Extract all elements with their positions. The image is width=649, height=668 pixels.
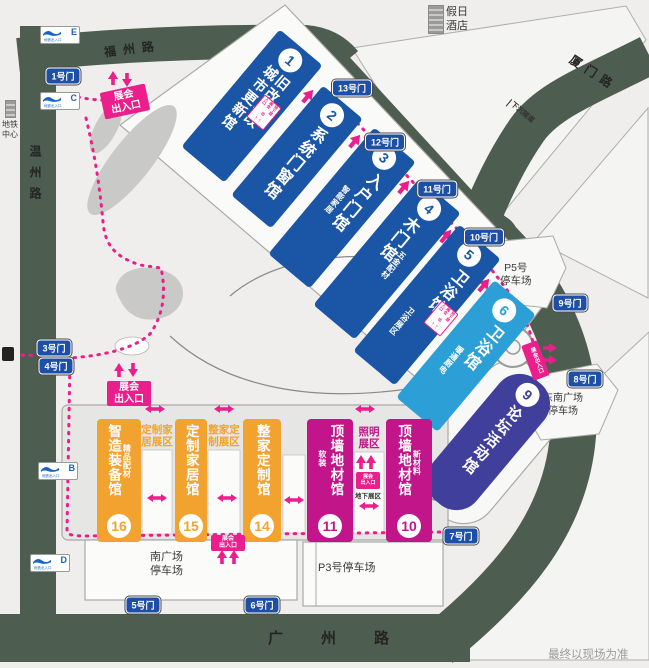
metro-exit-label: 地铁出入口: [34, 566, 52, 571]
hall-15-name: 定制家居馆: [183, 424, 199, 497]
gate-6[interactable]: 6号门: [244, 597, 279, 614]
gate-11[interactable]: 11号门: [417, 181, 457, 198]
basement-zone-label: 地下展区: [352, 493, 384, 501]
metro-exit-letter: D: [61, 555, 68, 565]
gate-13[interactable]: 13号门: [332, 80, 372, 97]
partial-gate-marker: [2, 347, 14, 361]
metro-wave-icon: [41, 464, 59, 473]
metro-wave-icon: [43, 94, 61, 103]
zone-whole-home: 整家定制展区: [207, 424, 241, 448]
gate-4[interactable]: 4号门: [38, 358, 73, 375]
metro-exit-letter: E: [71, 27, 77, 37]
hall-11[interactable]: 顶墙地材馆 软装 11: [307, 419, 353, 542]
metro-exit-e[interactable]: E 地铁出入口: [40, 26, 80, 44]
entrance-gap-lighting[interactable]: 展会出入口: [356, 472, 380, 489]
parking-p5: P5号停车场: [500, 262, 532, 288]
hall-10[interactable]: 新材料 顶墙地材馆 10: [386, 419, 432, 542]
entrance-south[interactable]: 展会出入口: [211, 535, 245, 551]
road-wenzhou: 温州路: [27, 145, 42, 208]
metro-wave-icon: [43, 28, 61, 37]
metro-exit-label: 地铁出入口: [42, 474, 60, 479]
zone-custom-home: 定制家居展区: [140, 424, 174, 448]
metro-exit-label: 地铁出入口: [44, 104, 62, 109]
metro-exit-label: 地铁出入口: [44, 38, 62, 43]
gate-12[interactable]: 12号门: [365, 134, 405, 151]
metro-exit-d[interactable]: D 地铁出入口: [30, 554, 70, 572]
metro-exit-b[interactable]: B 地铁出入口: [38, 462, 78, 480]
hall-14[interactable]: 整家定制馆 14: [243, 419, 281, 542]
parking-p3: P3号停车场: [318, 562, 375, 576]
zone-lighting: 照明展区: [356, 426, 382, 450]
parking-south: 南广场停车场: [150, 551, 183, 579]
hotel-icon: [428, 5, 444, 34]
hall-15-number: 15: [179, 514, 203, 538]
metro-exit-letter: B: [69, 463, 76, 473]
metro-center-icon: [5, 100, 16, 118]
disclaimer: 最终以现场为准: [548, 648, 629, 662]
gate-3[interactable]: 3号门: [36, 340, 71, 357]
hall-14-number: 14: [250, 514, 274, 538]
hall-15[interactable]: 定制家居馆 15: [175, 419, 207, 542]
metro-wave-icon: [33, 556, 51, 565]
hall-11-name: 顶墙地材馆 软装: [317, 424, 344, 497]
gate-10[interactable]: 10号门: [464, 229, 504, 246]
metro-exit-c[interactable]: C 地铁出入口: [40, 92, 80, 110]
hall-11-number: 11: [318, 514, 342, 538]
road-guangzhou: 广州路: [268, 630, 427, 649]
metro-exit-letter: C: [71, 93, 78, 103]
hall-16-number: 16: [107, 514, 131, 538]
gate-5[interactable]: 5号门: [125, 597, 160, 614]
venue-map: 福州路 温州路 厦门路 广州路 下沉隧道 假日酒店 地铁中心 最终以现场为准 P…: [0, 0, 649, 668]
hall-10-number: 10: [397, 514, 421, 538]
entrance-west[interactable]: 展会出入口: [107, 381, 151, 406]
hall-14-name: 整家定制馆: [254, 424, 270, 497]
hotel-label: 假日酒店: [446, 6, 468, 34]
gate-8[interactable]: 8号门: [567, 371, 602, 388]
gate-9[interactable]: 9号门: [552, 295, 587, 312]
gate-1[interactable]: 1号门: [45, 68, 80, 85]
metro-center-label: 地铁中心: [2, 120, 18, 140]
hall-16-name: 精品配材 智造装备馆: [106, 424, 133, 497]
hall-10-name: 新材料 顶墙地材馆: [396, 424, 423, 497]
hall-16[interactable]: 精品配材 智造装备馆 16: [97, 419, 141, 542]
gate-7[interactable]: 7号门: [443, 528, 478, 545]
